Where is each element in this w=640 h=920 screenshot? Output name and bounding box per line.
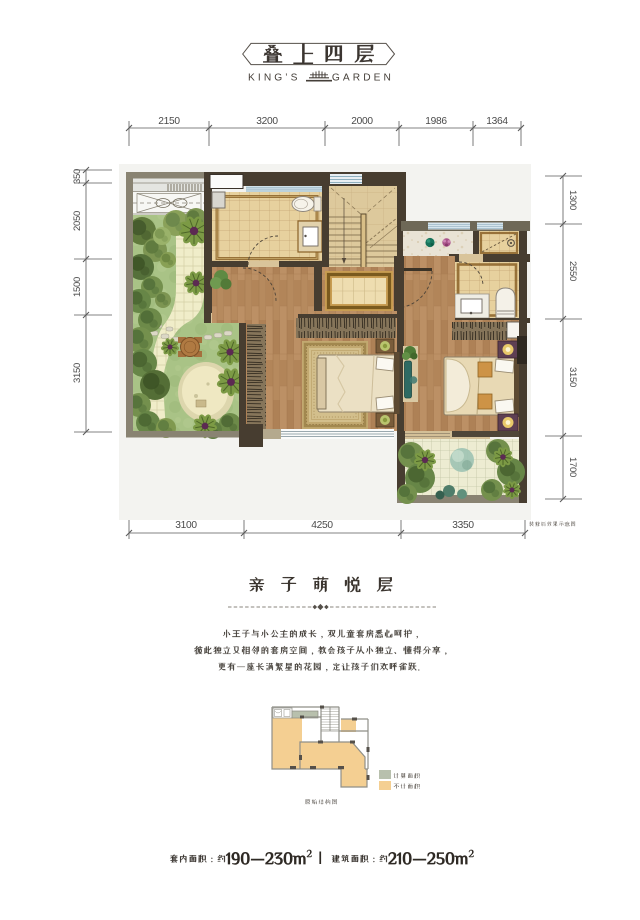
svg-text:4250: 4250 bbox=[311, 520, 333, 531]
svg-text:1500: 1500 bbox=[72, 277, 83, 297]
svg-text:3150: 3150 bbox=[72, 363, 83, 383]
svg-text:2150: 2150 bbox=[158, 116, 180, 127]
svg-text:2550: 2550 bbox=[567, 261, 578, 281]
svg-text:1700: 1700 bbox=[567, 457, 578, 477]
svg-text:3150: 3150 bbox=[567, 367, 578, 387]
svg-text:3200: 3200 bbox=[256, 116, 278, 127]
svg-text:3350: 3350 bbox=[452, 520, 474, 531]
svg-text:GARDEN: GARDEN bbox=[332, 73, 394, 84]
svg-text:1364: 1364 bbox=[486, 116, 508, 127]
svg-text:KING’S: KING’S bbox=[248, 73, 301, 84]
svg-text:3100: 3100 bbox=[175, 520, 197, 531]
svg-text:1300: 1300 bbox=[567, 190, 578, 210]
svg-text:2050: 2050 bbox=[72, 211, 83, 231]
svg-text:1986: 1986 bbox=[425, 116, 447, 127]
svg-text:2000: 2000 bbox=[351, 116, 373, 127]
svg-text:350: 350 bbox=[72, 169, 83, 184]
